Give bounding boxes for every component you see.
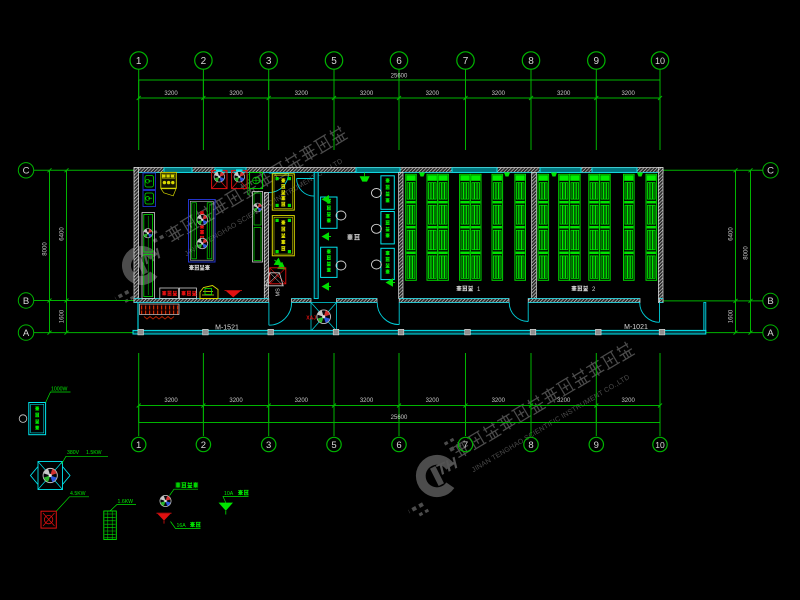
svg-text:16A: 16A — [177, 523, 187, 529]
svg-text:10: 10 — [655, 56, 665, 66]
svg-text:25600: 25600 — [391, 74, 408, 80]
svg-text:7: 7 — [463, 440, 468, 451]
svg-text:1600: 1600 — [60, 309, 66, 323]
svg-text:5: 5 — [331, 440, 336, 451]
svg-text:3200: 3200 — [426, 398, 440, 404]
svg-text:380V: 380V — [67, 450, 80, 456]
svg-text:1.5KW: 1.5KW — [86, 450, 102, 456]
svg-text:M-1021: M-1021 — [624, 324, 648, 331]
svg-text:3200: 3200 — [621, 398, 635, 404]
svg-text:3: 3 — [266, 56, 272, 67]
svg-text:3200: 3200 — [621, 91, 635, 97]
svg-text:9: 9 — [594, 440, 599, 451]
svg-text:B: B — [767, 296, 773, 307]
svg-text:8: 8 — [528, 56, 534, 67]
svg-text:5: 5 — [331, 56, 337, 67]
svg-text:10A: 10A — [224, 491, 234, 497]
svg-text:3200: 3200 — [295, 91, 309, 97]
svg-text:3200: 3200 — [295, 398, 309, 404]
svg-text:2: 2 — [201, 440, 206, 451]
svg-text:8000: 8000 — [43, 242, 49, 256]
svg-text:1: 1 — [136, 56, 142, 67]
svg-text:3200: 3200 — [557, 91, 571, 97]
svg-text:6400: 6400 — [60, 227, 66, 241]
svg-text:25600: 25600 — [391, 415, 408, 421]
svg-text:1000W: 1000W — [51, 387, 68, 393]
svg-text:MS: MS — [276, 288, 282, 297]
svg-text:B: B — [23, 296, 29, 307]
svg-text:9: 9 — [594, 56, 600, 67]
svg-text:6400: 6400 — [729, 227, 735, 241]
svg-text:C: C — [23, 166, 30, 177]
svg-text:A: A — [767, 328, 774, 339]
svg-text:3200: 3200 — [360, 91, 374, 97]
svg-text:3200: 3200 — [164, 91, 178, 97]
svg-text:6: 6 — [396, 56, 402, 67]
svg-text:8000: 8000 — [744, 246, 750, 260]
svg-text:3200: 3200 — [229, 91, 243, 97]
svg-text:4.5KW: 4.5KW — [70, 491, 86, 497]
svg-text:C: C — [767, 166, 774, 177]
svg-text:3200: 3200 — [557, 398, 571, 404]
svg-text:1.6KW: 1.6KW — [118, 499, 134, 505]
svg-text:3200: 3200 — [492, 398, 506, 404]
svg-text:A: A — [23, 328, 30, 339]
svg-text:7: 7 — [463, 56, 469, 67]
svg-text:3200: 3200 — [360, 398, 374, 404]
svg-text:M-1521: M-1521 — [215, 325, 239, 332]
svg-text:3200: 3200 — [164, 398, 178, 404]
svg-text:1: 1 — [136, 440, 141, 451]
svg-text:XAJ: XAJ — [306, 316, 316, 322]
svg-text:3: 3 — [266, 440, 271, 451]
svg-text:8: 8 — [528, 440, 533, 451]
svg-text:3200: 3200 — [229, 398, 243, 404]
svg-text:1600: 1600 — [729, 309, 735, 323]
svg-text:6: 6 — [396, 440, 401, 451]
svg-text:3200: 3200 — [426, 91, 440, 97]
svg-text:2: 2 — [201, 56, 207, 67]
svg-text:10: 10 — [655, 440, 665, 450]
svg-text:3200: 3200 — [492, 91, 506, 97]
